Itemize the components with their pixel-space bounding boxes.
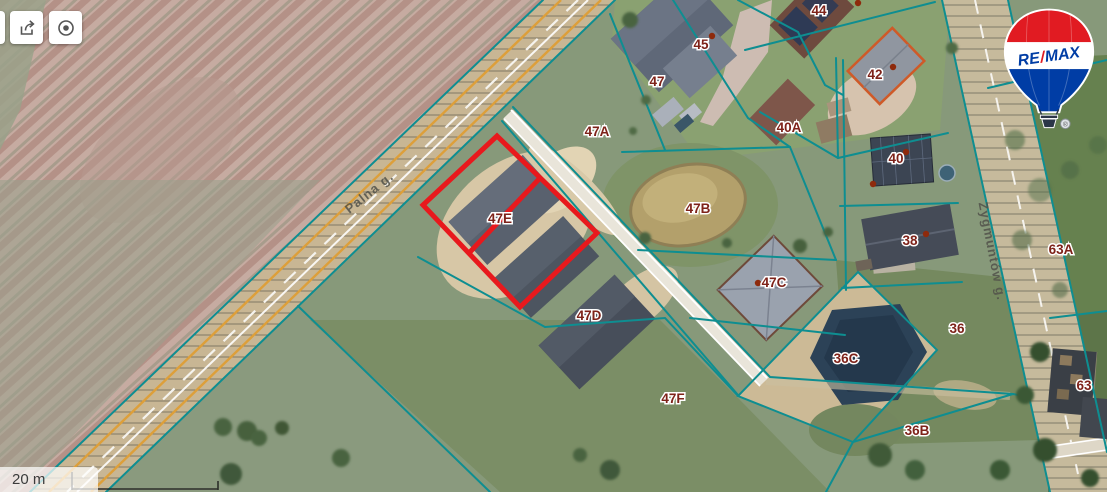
tree: [946, 42, 958, 54]
parcel-label-36: 36: [949, 321, 965, 336]
tree: [1033, 438, 1057, 462]
parcel-label-63A: 63A: [1049, 242, 1074, 257]
tree: [823, 227, 833, 237]
parcel-label-40A: 40A: [777, 120, 802, 135]
tree: [1081, 469, 1099, 487]
scale-bar-label: 20 m: [12, 471, 45, 488]
tree: [622, 12, 638, 28]
tree: [1089, 136, 1107, 154]
tree: [1052, 282, 1068, 298]
map-viewport[interactable]: 45 47 47A 44 42 40A 40 38 47B 47C 47E 47…: [0, 0, 1107, 492]
tree: [990, 460, 1010, 480]
share-icon: [17, 18, 37, 38]
tree: [332, 449, 350, 467]
address-dot: [923, 231, 929, 237]
parcel-label-47A: 47A: [585, 124, 610, 139]
parcel-label-47B: 47B: [686, 201, 711, 216]
tree: [220, 463, 242, 485]
tree: [905, 460, 925, 480]
address-dot: [870, 181, 876, 187]
tree: [600, 460, 620, 480]
parcel-label-47E: 47E: [488, 211, 512, 226]
parcel-label-44: 44: [811, 3, 827, 18]
tree: [1028, 178, 1052, 202]
tree: [1030, 342, 1050, 362]
aerial-map[interactable]: 45 47 47A 44 42 40A 40 38 47B 47C 47E 47…: [0, 0, 1107, 492]
address-dot: [709, 33, 715, 39]
address-dot: [903, 149, 909, 155]
tree: [639, 232, 651, 244]
locate-button[interactable]: [49, 11, 82, 44]
tree: [251, 430, 267, 446]
tree: [793, 239, 807, 253]
parcel-label-36C: 36C: [834, 351, 859, 366]
tree: [722, 238, 732, 248]
tree: [1061, 161, 1079, 179]
parcel-label-36B: 36B: [905, 423, 930, 438]
address-dot: [855, 0, 861, 6]
parcel-label-38: 38: [902, 233, 918, 248]
address-dot: [755, 280, 761, 286]
tree: [641, 95, 651, 105]
tree: [275, 421, 289, 435]
parcel-label-63: 63: [1076, 378, 1092, 393]
locate-icon: [55, 17, 77, 39]
address-dot: [890, 64, 896, 70]
share-button[interactable]: [10, 11, 43, 44]
partial-button[interactable]: [0, 11, 5, 44]
tree: [573, 448, 587, 462]
tree: [1012, 230, 1032, 250]
parcel-label-47: 47: [649, 74, 664, 89]
parcel-label-42: 42: [867, 67, 882, 82]
pool-40: [939, 165, 955, 181]
parcel-label-47C: 47C: [762, 275, 787, 290]
scale-bar: 20 m: [0, 467, 98, 492]
tree: [629, 127, 637, 135]
parcel-label-47D: 47D: [577, 308, 602, 323]
tree: [1005, 130, 1025, 150]
parcel-label-45: 45: [693, 37, 709, 52]
tree: [1016, 386, 1034, 404]
parcel-label-47F: 47F: [661, 391, 684, 406]
parcel-label-40: 40: [888, 151, 903, 166]
tree: [868, 443, 892, 467]
tree: [214, 418, 232, 436]
